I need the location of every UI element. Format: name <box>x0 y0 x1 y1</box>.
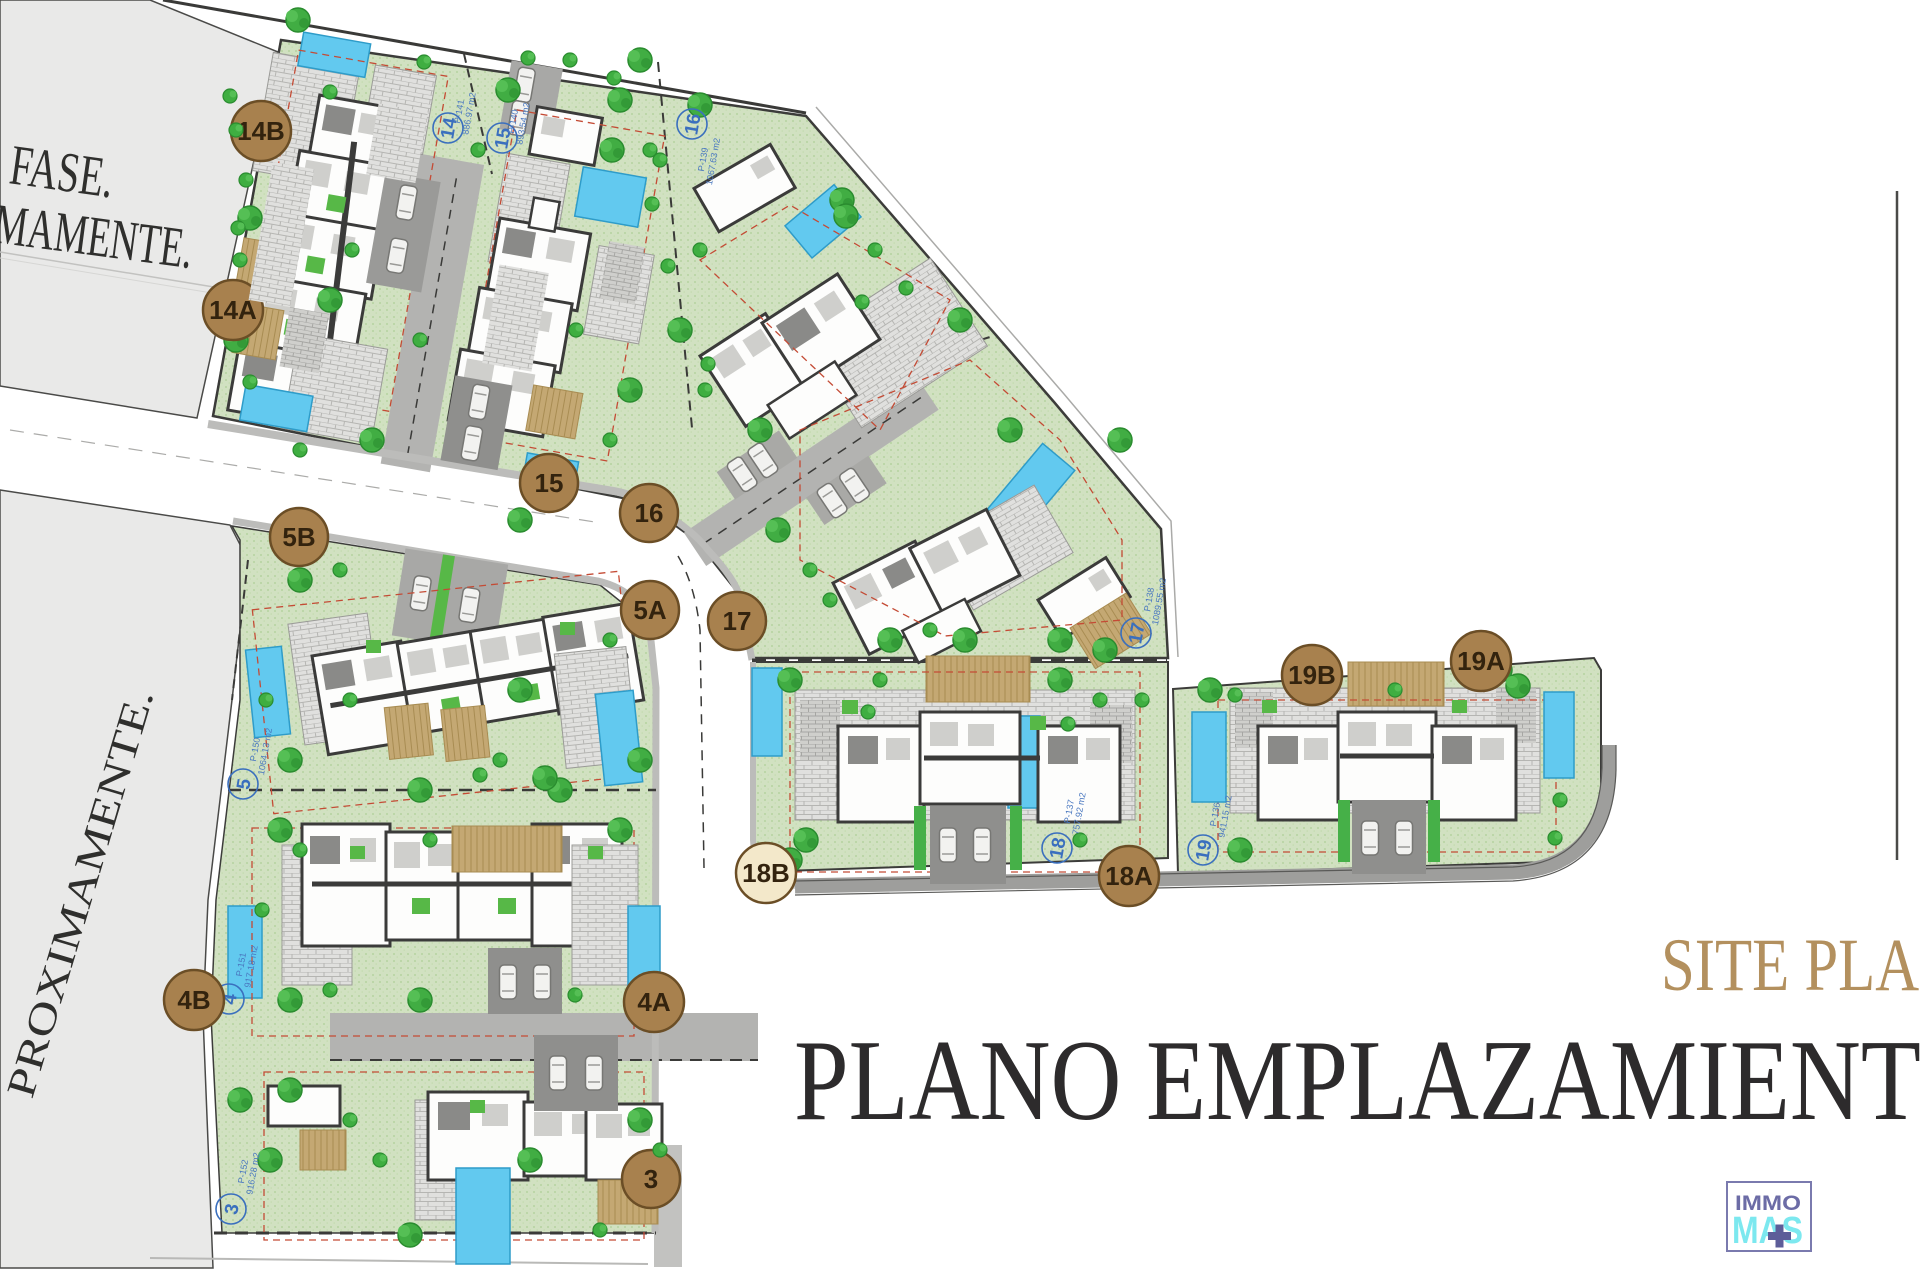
svg-text:MAS: MAS <box>1732 1210 1803 1252</box>
svg-text:18B: 18B <box>742 858 790 888</box>
svg-text:19A: 19A <box>1457 646 1505 676</box>
svg-text:15: 15 <box>535 468 564 498</box>
svg-text:17: 17 <box>723 606 752 636</box>
svg-text:SITE PLAN: SITE PLAN <box>1661 924 1920 1007</box>
svg-text:18: 18 <box>1046 836 1070 860</box>
svg-text:5A: 5A <box>633 595 666 625</box>
svg-text:3: 3 <box>644 1164 658 1194</box>
svg-text:5B: 5B <box>282 522 315 552</box>
svg-text:18A: 18A <box>1105 861 1153 891</box>
svg-text:16: 16 <box>681 112 705 136</box>
svg-text:17: 17 <box>1125 621 1149 645</box>
svg-text:19: 19 <box>1192 838 1216 862</box>
svg-text:14B: 14B <box>237 116 285 146</box>
svg-text:4A: 4A <box>637 987 670 1017</box>
svg-text:16: 16 <box>635 498 664 528</box>
svg-text:19B: 19B <box>1288 660 1336 690</box>
svg-text:PLANO EMPLAZAMIENTO: PLANO EMPLAZAMIENTO <box>794 1017 1920 1145</box>
svg-text:4B: 4B <box>177 985 210 1015</box>
